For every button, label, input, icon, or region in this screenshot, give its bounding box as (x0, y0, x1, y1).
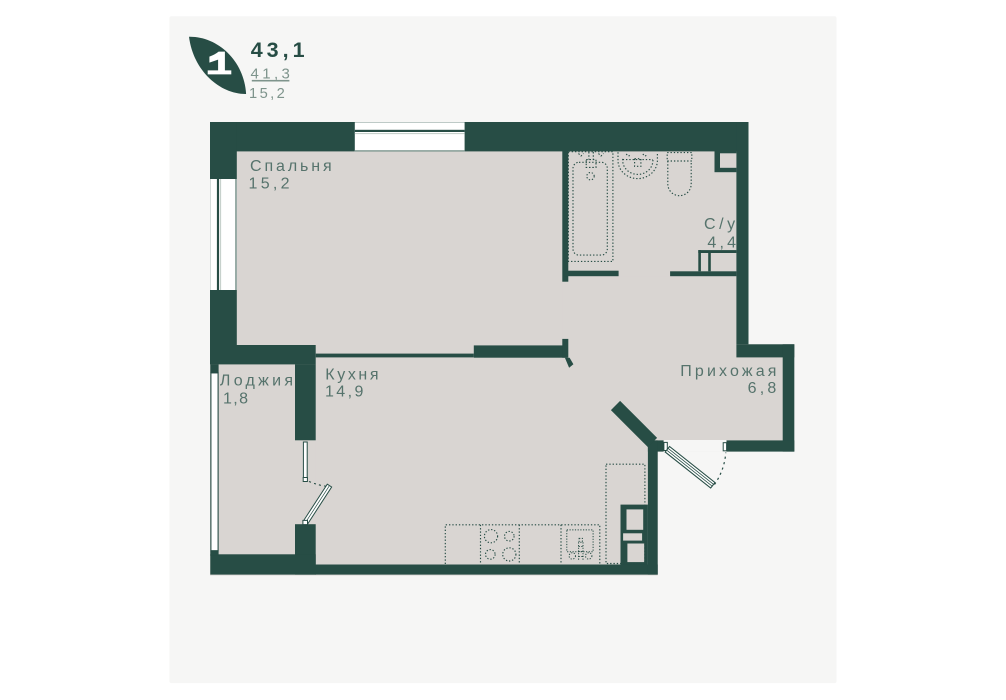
svg-text:14,9: 14,9 (325, 384, 366, 401)
svg-text:6,8: 6,8 (748, 380, 780, 397)
svg-text:15,2: 15,2 (249, 176, 293, 193)
svg-text:С/у: С/у (704, 216, 739, 233)
svg-text:Кухня: Кухня (325, 367, 381, 384)
svg-text:43,1: 43,1 (251, 38, 309, 62)
svg-text:Прихожая: Прихожая (680, 363, 779, 380)
svg-text:1,8: 1,8 (223, 391, 249, 408)
svg-text:Спальня: Спальня (250, 158, 335, 175)
svg-text:Лоджия: Лоджия (220, 373, 297, 390)
svg-text:4,4: 4,4 (707, 234, 739, 251)
svg-text:15,2: 15,2 (249, 86, 287, 102)
